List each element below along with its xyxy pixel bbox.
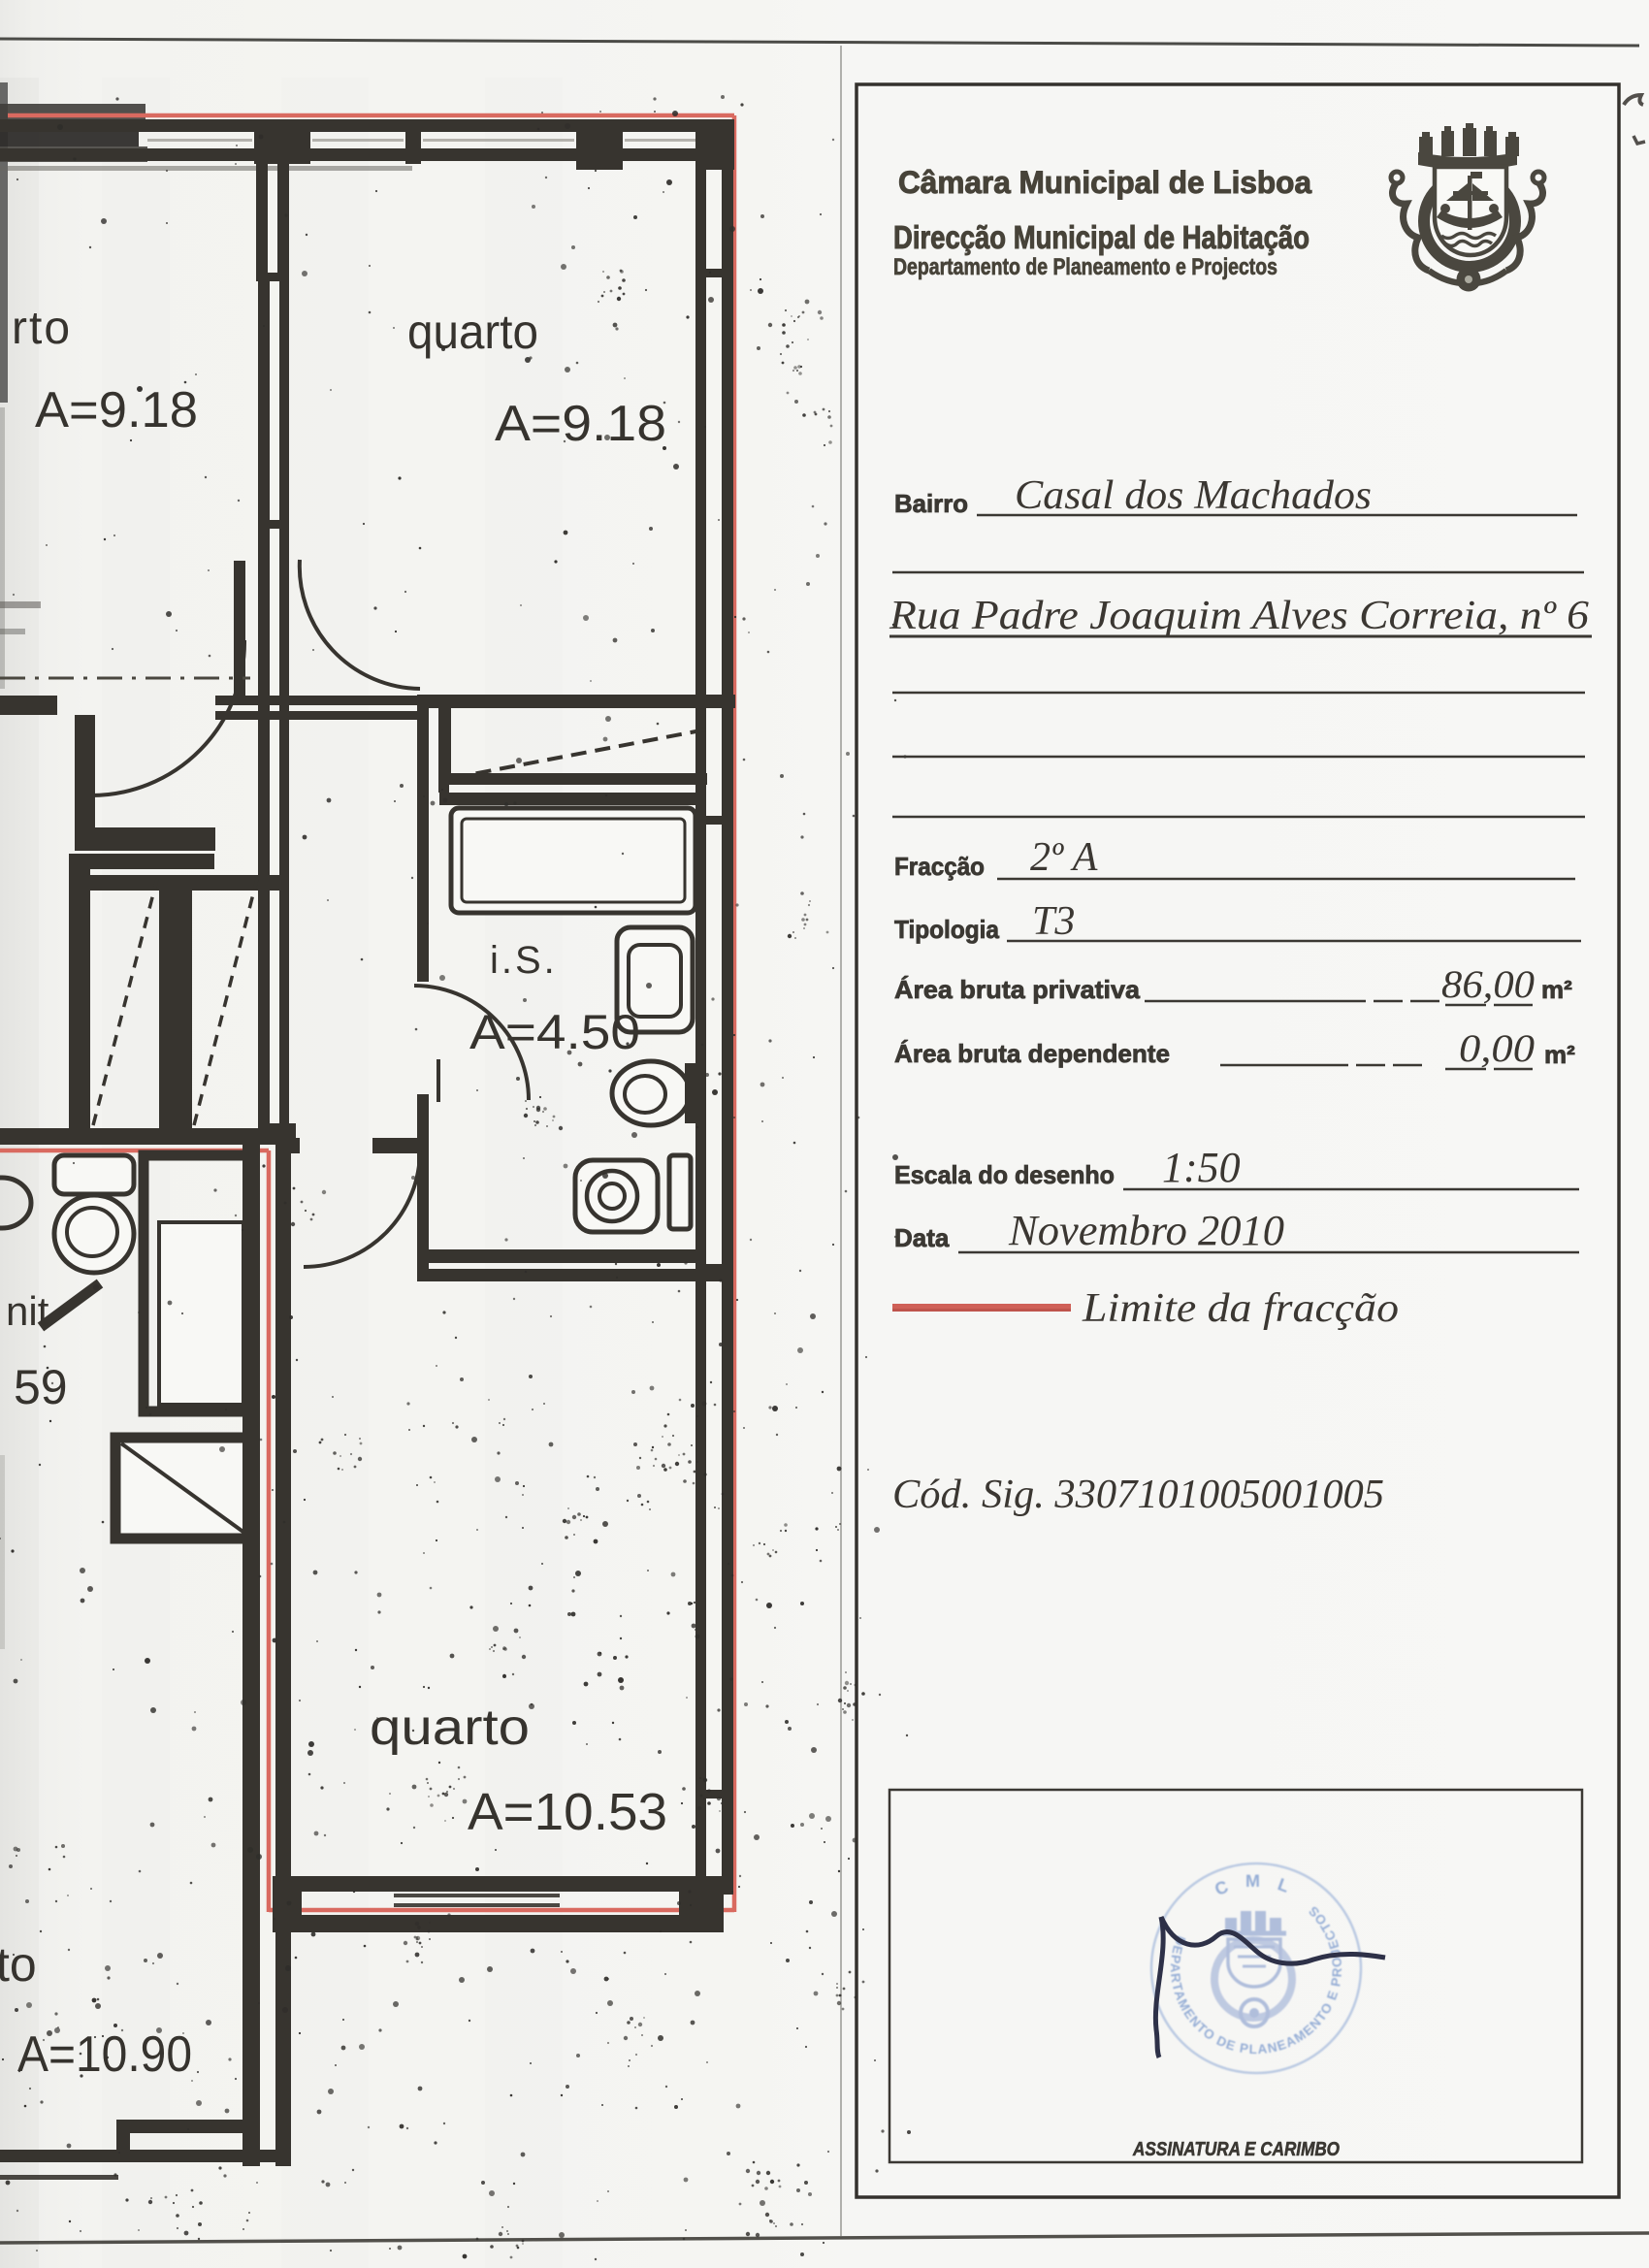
svg-text:quarto: quarto	[370, 1700, 530, 1756]
svg-text:59: 59	[14, 1360, 68, 1414]
svg-text:Área bruta privativa: Área bruta privativa	[894, 975, 1141, 1004]
svg-text:m²: m²	[1541, 975, 1572, 1004]
svg-text:Escala do desenho: Escala do desenho	[894, 1160, 1115, 1189]
svg-text:Limite da fracção: Limite da fracção	[1082, 1286, 1399, 1331]
svg-text:m²: m²	[1544, 1040, 1575, 1069]
svg-text:nit: nit	[6, 1288, 49, 1334]
svg-text:A=4.50: A=4.50	[469, 1005, 640, 1059]
svg-text:A=9.18: A=9.18	[495, 396, 666, 452]
svg-text:T3: T3	[1032, 899, 1075, 944]
svg-text:86,00: 86,00	[1441, 962, 1535, 1006]
svg-text:1:50: 1:50	[1162, 1144, 1241, 1191]
svg-text:Câmara Municipal de Lisboa: Câmara Municipal de Lisboa	[898, 165, 1311, 200]
svg-text:Área bruta dependente: Área bruta dependente	[894, 1039, 1170, 1068]
svg-text:Novembro 2010: Novembro 2010	[1008, 1207, 1284, 1254]
svg-text:Fracção: Fracção	[894, 852, 985, 881]
svg-text:A=10.53: A=10.53	[468, 1783, 667, 1841]
svg-text:Cód. Sig. 3307101005001005: Cód. Sig. 3307101005001005	[892, 1473, 1384, 1517]
svg-text:C M L: C M L	[1212, 1871, 1298, 1899]
svg-text:Departamento de Planeamento e: Departamento de Planeamento e Projectos	[893, 254, 1277, 280]
svg-text:rto: rto	[12, 303, 72, 354]
svg-text:0,00: 0,00	[1459, 1026, 1535, 1070]
svg-text:to: to	[0, 1937, 37, 1992]
svg-text:A=10.90: A=10.90	[17, 2026, 192, 2083]
svg-text:i.S.: i.S.	[490, 939, 558, 982]
svg-text:ASSINATURA E CARIMBO: ASSINATURA E CARIMBO	[1132, 2139, 1340, 2160]
svg-text:Rua Padre Joaquim Alves Correi: Rua Padre Joaquim Alves Correia, nº 6	[889, 594, 1589, 638]
svg-text:quarto: quarto	[407, 305, 538, 359]
svg-text:2º A: 2º A	[1030, 835, 1098, 880]
svg-text:Direcção Municipal de Habitaçã: Direcção Municipal de Habitação	[893, 219, 1309, 255]
svg-text:Bairro: Bairro	[894, 489, 968, 518]
svg-text:A=9.18: A=9.18	[35, 382, 198, 438]
svg-text:Tipologia: Tipologia	[894, 915, 999, 944]
svg-text:Casal dos Machados: Casal dos Machados	[1015, 473, 1372, 518]
svg-text:Data: Data	[894, 1223, 950, 1252]
